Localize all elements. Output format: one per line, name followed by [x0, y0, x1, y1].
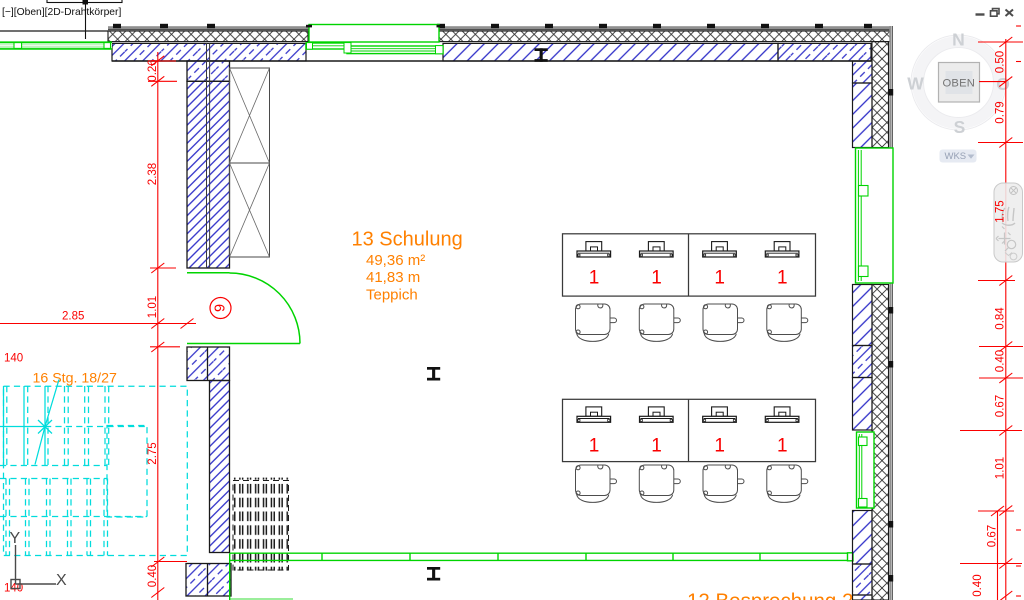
svg-text:1: 1 [651, 436, 662, 457]
svg-text:1.01: 1.01 [995, 457, 1007, 479]
svg-text:1.01: 1.01 [147, 296, 159, 318]
svg-text:2.38: 2.38 [147, 163, 159, 185]
svg-text:0.50: 0.50 [995, 51, 1007, 73]
svg-text:49,36 m²: 49,36 m² [366, 252, 425, 269]
svg-text:Teppich: Teppich [366, 287, 418, 304]
svg-text:1: 1 [714, 268, 725, 289]
svg-text:W: W [907, 74, 924, 94]
svg-text:1: 1 [777, 436, 788, 457]
svg-text:X: X [56, 572, 67, 589]
svg-text:9: 9 [213, 304, 229, 312]
svg-text:[−][Oben][2D-Drahtkörper]: [−][Oben][2D-Drahtkörper] [2, 7, 121, 18]
svg-text:0.79: 0.79 [995, 101, 1007, 123]
svg-text:1: 1 [589, 268, 600, 289]
svg-text:2.85: 2.85 [62, 311, 84, 323]
svg-text:0.26: 0.26 [147, 59, 159, 81]
svg-text:Y: Y [10, 530, 21, 547]
svg-text:2.75: 2.75 [147, 442, 159, 464]
svg-text:0.67: 0.67 [987, 525, 999, 547]
svg-text:0.40: 0.40 [972, 574, 984, 596]
svg-text:140: 140 [4, 353, 23, 365]
svg-text:WKS: WKS [945, 151, 967, 162]
svg-text:0.40: 0.40 [995, 350, 1007, 372]
svg-text:16 Stg. 18/27: 16 Stg. 18/27 [33, 371, 118, 387]
svg-text:0.84: 0.84 [995, 307, 1007, 330]
svg-text:1: 1 [777, 268, 788, 289]
svg-text:OBEN: OBEN [943, 78, 976, 90]
svg-text:1: 1 [651, 268, 662, 289]
svg-text:S: S [954, 117, 966, 137]
svg-text:41,83 m: 41,83 m [366, 269, 420, 286]
svg-text:0.67: 0.67 [995, 395, 1007, 417]
svg-text:0.40: 0.40 [147, 565, 159, 587]
svg-text:1: 1 [589, 436, 600, 457]
svg-text:13 Schulung: 13 Schulung [352, 228, 463, 250]
svg-text:1.75: 1.75 [995, 200, 1007, 222]
svg-text:N: N [952, 30, 965, 50]
svg-text:12 Besprechung 2: 12 Besprechung 2 [687, 590, 853, 600]
svg-text:1: 1 [714, 436, 725, 457]
